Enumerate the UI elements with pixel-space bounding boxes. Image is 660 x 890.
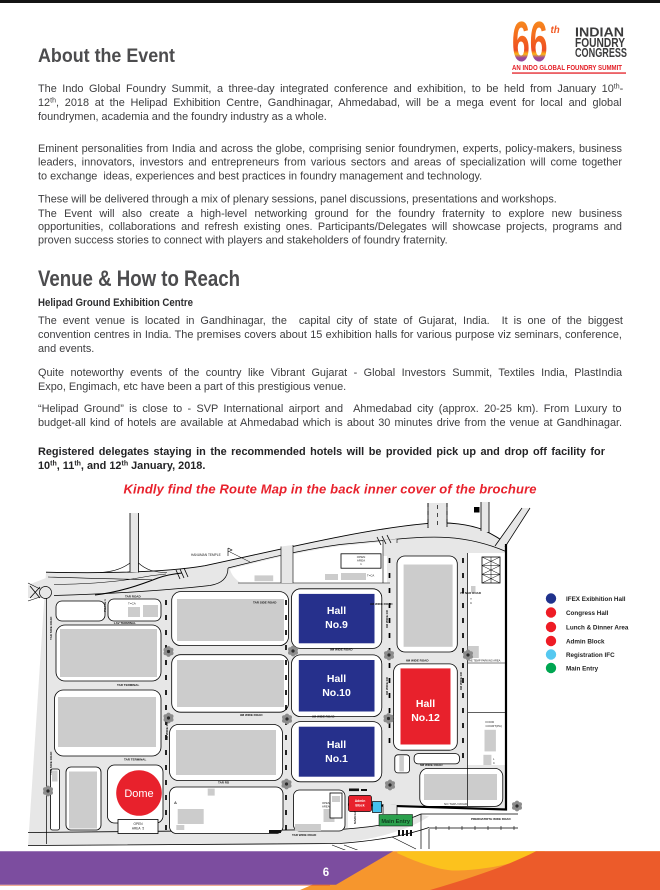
svg-text:PRERNATIRTH WIDE ROAD: PRERNATIRTH WIDE ROAD — [471, 817, 511, 821]
svg-text:TAR TERMINAL: TAR TERMINAL — [117, 683, 139, 687]
svg-text:PHASE 1: PHASE 1 — [103, 599, 107, 612]
svg-text:A: A — [174, 800, 177, 805]
svg-text:th: th — [551, 25, 560, 36]
svg-text:9M WIDE RD: 9M WIDE RD — [459, 671, 463, 690]
svg-text:9M WIDE RD: 9M WIDE RD — [165, 721, 169, 740]
svg-text:9M WIDE ROAD: 9M WIDE ROAD — [370, 602, 393, 606]
svg-text:NO THRU ROAD: NO THRU ROAD — [444, 802, 468, 806]
svg-text:T=CA: T=CA — [367, 574, 374, 578]
svg-text:proven success stories to conn: proven success stories to connect with p… — [38, 235, 448, 247]
svg-text:9M WIDE RD: 9M WIDE RD — [385, 676, 389, 695]
svg-text:12th, 2018 at the Helipad Exhi: 12th, 2018 at the Helipad Exhibition Cen… — [38, 97, 622, 109]
svg-text:LAV TERMINAL: LAV TERMINAL — [114, 621, 136, 625]
svg-text:foundrymen, academia and the f: foundrymen, academia and the foundry ind… — [38, 111, 327, 123]
svg-text:CONGRESS: CONGRESS — [575, 46, 627, 60]
svg-text:No.10: No.10 — [322, 687, 351, 699]
svg-text:Hall: Hall — [327, 605, 346, 617]
svg-text:10th, 11th, and 12th January,: 10th, 11th, and 12th January, 2018. — [38, 460, 205, 472]
svg-text:TAR SIDE ROAD: TAR SIDE ROAD — [49, 751, 53, 775]
svg-text:T=CA: T=CA — [128, 602, 136, 606]
svg-text:7M NER ROAD: 7M NER ROAD — [460, 591, 482, 595]
svg-text:Eminent personalities from Ind: Eminent personalities from India and acr… — [38, 143, 623, 155]
svg-text:About the Event: About the Event — [38, 45, 175, 67]
svg-text:THE TEMP PARKING AREA: THE TEMP PARKING AREA — [468, 659, 501, 663]
svg-text:Lunch & Dinner Area: Lunch & Dinner Area — [566, 624, 629, 631]
svg-text:TAR RD: TAR RD — [218, 781, 230, 785]
svg-text:TAR ROAD: TAR ROAD — [125, 595, 141, 599]
svg-text:Congress Hall: Congress Hall — [566, 610, 609, 617]
svg-text:Admin Block: Admin Block — [566, 638, 605, 645]
svg-text:These will be delivered throug: These will be delivered through a mix of… — [38, 193, 557, 205]
svg-text:Quite noteworthy events of the: Quite noteworthy events of the country l… — [38, 367, 623, 379]
svg-text:opportunities, collaborations: opportunities, collaborations and refres… — [38, 221, 622, 233]
svg-text:9M WIDE ROAD: 9M WIDE ROAD — [312, 715, 335, 719]
svg-text:IFEX Exibhition Hall: IFEX Exibhition Hall — [566, 596, 626, 603]
svg-text:budget-all kind of hotels are: budget-all kind of hotels are available … — [38, 417, 622, 429]
svg-text:HANUMAN TEMPLE: HANUMAN TEMPLE — [191, 553, 221, 557]
svg-text:Kindly find the Route Map in t: Kindly find the Route Map in the back in… — [124, 482, 537, 497]
svg-text:Venue & How to Reach: Venue & How to Reach — [38, 266, 240, 291]
svg-text:and events.: and events. — [38, 343, 94, 355]
svg-text:“Helipad Ground” is close to -: “Helipad Ground” is close to - SVP Inter… — [38, 403, 622, 415]
svg-text:Expo, Engimach, etc have been: Expo, Engimach, etc have been a part of … — [38, 381, 346, 393]
svg-text:No.12: No.12 — [411, 712, 440, 724]
svg-text:Registration IFC: Registration IFC — [566, 652, 615, 659]
svg-text:to exchange ideas, experience: to exchange ideas, experiences and best … — [38, 170, 482, 182]
svg-text:No.1: No.1 — [325, 753, 348, 765]
svg-text:9M WIDE ROAD: 9M WIDE ROAD — [240, 713, 263, 717]
svg-text:The Indo Global Foundry Summit: The Indo Global Foundry Summit, a three-… — [38, 83, 624, 95]
svg-text:Main Entry: Main Entry — [381, 819, 410, 825]
svg-text:COURT(PA): COURT(PA) — [486, 724, 502, 728]
svg-text:convention centres in India. T: convention centres in India. The premise… — [38, 329, 622, 341]
svg-text:Main Entry: Main Entry — [566, 665, 599, 672]
svg-text:9M WIDE ROAD: 9M WIDE ROAD — [330, 648, 353, 652]
svg-text:TAR SIDE ROAD: TAR SIDE ROAD — [49, 616, 53, 640]
svg-text:OPEN: OPEN — [133, 822, 143, 826]
svg-text:No.9: No.9 — [325, 619, 348, 631]
svg-text:9M WIDE RD: 9M WIDE RD — [385, 609, 389, 628]
svg-text:Block: Block — [355, 804, 364, 808]
svg-text:leaders, innovators, investors: leaders, innovators, investors and entre… — [38, 157, 622, 169]
svg-text:Hall: Hall — [327, 739, 346, 751]
svg-text:The Event will also create a h: The Event will also create a high-level … — [38, 208, 623, 220]
svg-text:Hall: Hall — [416, 698, 435, 710]
svg-text:Hall: Hall — [327, 673, 346, 685]
svg-text:TAR TERMINAL: TAR TERMINAL — [124, 758, 146, 762]
svg-text:Helipad Ground Exhibition Cent: Helipad Ground Exhibition Centre — [38, 297, 193, 309]
svg-text:C: C — [493, 761, 495, 765]
svg-text:6M WIDE ROAD: 6M WIDE ROAD — [406, 659, 429, 663]
svg-text:AREA 5: AREA 5 — [132, 827, 144, 831]
svg-text:TAR SIDE ROAD: TAR SIDE ROAD — [253, 601, 277, 605]
svg-text:Registered delegates staying i: Registered delegates staying in the reco… — [38, 446, 606, 458]
svg-text:Admin: Admin — [355, 799, 366, 803]
svg-text:6M WIDE ROAD: 6M WIDE ROAD — [420, 763, 443, 767]
svg-text:6: 6 — [323, 867, 329, 879]
svg-text:TAR WIDE ROAD: TAR WIDE ROAD — [292, 833, 317, 837]
svg-text:The event venue is located in: The event venue is located in Gandhinaga… — [38, 315, 623, 327]
svg-text:AN INDO GLOBAL FOUNDRY SUMMIT: AN INDO GLOBAL FOUNDRY SUMMIT — [512, 63, 622, 72]
svg-text:Dome: Dome — [124, 788, 153, 800]
